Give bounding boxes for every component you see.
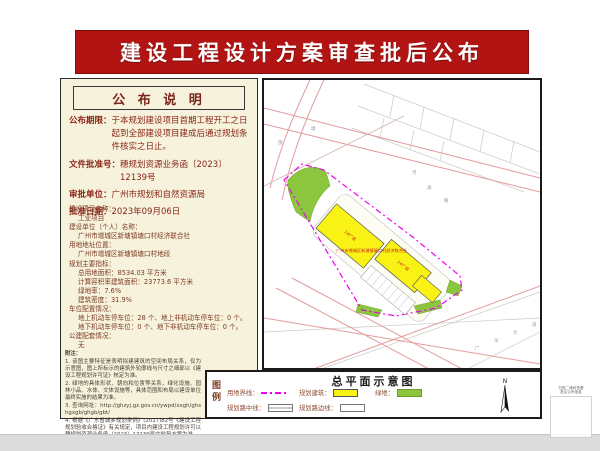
centerline-swatch (268, 404, 293, 412)
north-arrow: N (492, 376, 518, 416)
footnote-item: 2. 绿地的具体形状、朝向和位置等关系，绿化设施、园林小品、水体、文体设施等，具… (65, 381, 201, 402)
detail-line: 建设单位（个人）名称： (69, 223, 249, 232)
detail-line: 建设项目名称： (69, 205, 249, 214)
svg-text:河: 河 (412, 169, 417, 176)
footnotes-title: 附注： (65, 351, 201, 358)
svg-text:路: 路 (444, 197, 449, 204)
legend-item-edgeline: 规划路边线： (299, 403, 365, 412)
detail-line: 公建配套情况： (69, 332, 249, 341)
svg-text:N: N (503, 378, 508, 385)
detail-line: 计算容积率建筑面积：23773.6 平方米 (69, 278, 249, 287)
detail-line: 广州市增城区新塘镇塘口村地段 (69, 250, 249, 259)
detail-line: 广州市增城区新塘镇塘口村经济联合社 (69, 232, 249, 241)
svg-text:深: 深 (494, 337, 499, 344)
qr-code (550, 396, 592, 438)
boundary-line-swatch (261, 392, 289, 394)
site-company-label: 广州市增城区新塘镇塘口村经济联合社 (336, 247, 407, 254)
project-details: 建设项目名称： 工业项目 建设单位（个人）名称： 广州市增城区新塘镇塘口村经济联… (69, 205, 249, 351)
edgeline-swatch (340, 404, 365, 412)
svg-text:大: 大 (513, 329, 518, 336)
field-publish-period: 公布期限： 于本规划建设项目首期工程开工之日起到全部建设项目建成后通过规划条件核… (69, 115, 251, 155)
building-swatch (333, 389, 358, 397)
notice-banner-title: 建设工程设计方案审查批后公布 (120, 37, 484, 67)
announcement-section-title: 公 布 说 明 (73, 86, 245, 110)
detail-line: 工业项目 (69, 214, 249, 223)
detail-line: 规划主要指标： (69, 260, 249, 269)
detail-line: 车位配置情况： (69, 305, 249, 314)
detail-line: 无 (69, 341, 249, 350)
announcement-panel: 公 布 说 明 公布期限： 于本规划建设项目首期工程开工之日起到全部建设项目建成… (60, 78, 258, 419)
detail-line: 绿地率：7.6% (69, 287, 249, 296)
detail-line: 总用地面积：8534.03 平方米 (69, 269, 249, 278)
legend-title: 图例 (212, 380, 224, 404)
qr-block: 扫描二维码查看 批后公布信息 (548, 386, 594, 438)
legend-item-centerline: 规划路中线： (227, 403, 293, 412)
detail-line: 地下机动车停车位：0 个、地下非机动车停车位：0 个。 (69, 323, 249, 332)
field-approval-authority: 审批单位： 广州市规划和自然资源局 (69, 189, 251, 202)
detail-line: 建筑密度：31.9% (69, 296, 249, 305)
svg-text:广: 广 (475, 345, 480, 352)
site-plan-title: 总平面示意图 (332, 373, 416, 389)
green-swatch (397, 389, 422, 397)
svg-text:围: 围 (278, 140, 283, 146)
notice-banner: 建设工程设计方案审查批后公布 (75, 30, 529, 74)
svg-text:塘: 塘 (311, 125, 316, 132)
legend-strip: 总平面示意图 图例 用地界线： 规划建筑： 绿地： 规划路中线： 规划路边线： … (205, 370, 542, 419)
footnote-item: 1. 该图主要特征是表明拟建建筑的空间布局关系，仅为示意图，图上所标示的建筑外轮… (65, 359, 201, 380)
field-approval-doc-number: 文件批准号： 穗规划资源业务函〔2023〕12139号 (69, 159, 251, 185)
detail-line: 地上机动车停车位：28 个、地上非机动车停车位：0 个。 (69, 314, 249, 323)
legend-item-building: 规划建筑： (299, 388, 358, 397)
bottom-band (0, 434, 600, 451)
footnote-item: 3. 查询网址：http://ghzyj.gz.gov.cn/ywpd/xxgh… (65, 403, 201, 417)
qr-caption-line2: 批后公布信息 (548, 390, 594, 394)
svg-text:涌: 涌 (427, 184, 432, 191)
site-plan-map: 1#厂房 2#厂房 广州市增城区新塘镇塘口村经济联合社 塘 围 河 涌 路 广 … (262, 78, 542, 370)
legend-item-boundary: 用地界线： (227, 388, 289, 397)
footnotes: 附注： 1. 该图主要特征是表明拟建建筑的空间布局关系，仅为示意图，图上所标示的… (65, 351, 201, 440)
svg-text:道: 道 (532, 321, 537, 328)
legend-item-green: 绿地： (375, 388, 422, 397)
